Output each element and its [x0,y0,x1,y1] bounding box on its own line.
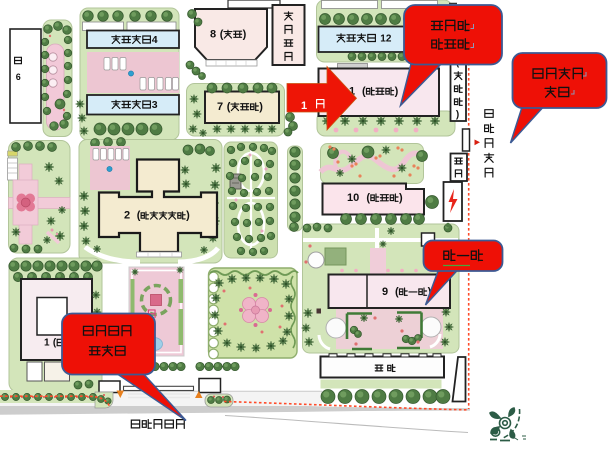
svg-text:8: 8 [210,29,216,41]
svg-text:7: 7 [217,101,223,113]
svg-text:(: ( [137,210,141,222]
svg-text:): ) [399,192,403,204]
svg-text:): ) [395,86,399,98]
svg-text:): ) [243,29,247,41]
svg-text:10: 10 [347,192,359,204]
svg-text:6: 6 [16,72,21,82]
svg-text:(: ( [366,192,370,204]
svg-text:(: ( [395,286,399,298]
svg-text:1: 1 [301,100,307,112]
svg-text:12: 12 [380,34,392,45]
svg-text:2: 2 [124,210,130,222]
svg-text:3: 3 [152,99,158,111]
svg-text:9: 9 [382,286,388,298]
svg-text:): ) [186,210,190,222]
svg-text:(: ( [227,101,231,113]
svg-text:(: ( [362,86,366,98]
svg-text:1: 1 [44,338,50,349]
svg-text:(: ( [220,29,224,41]
svg-text:): ) [456,110,459,121]
svg-text:): ) [259,101,263,113]
svg-text:4: 4 [152,34,158,46]
